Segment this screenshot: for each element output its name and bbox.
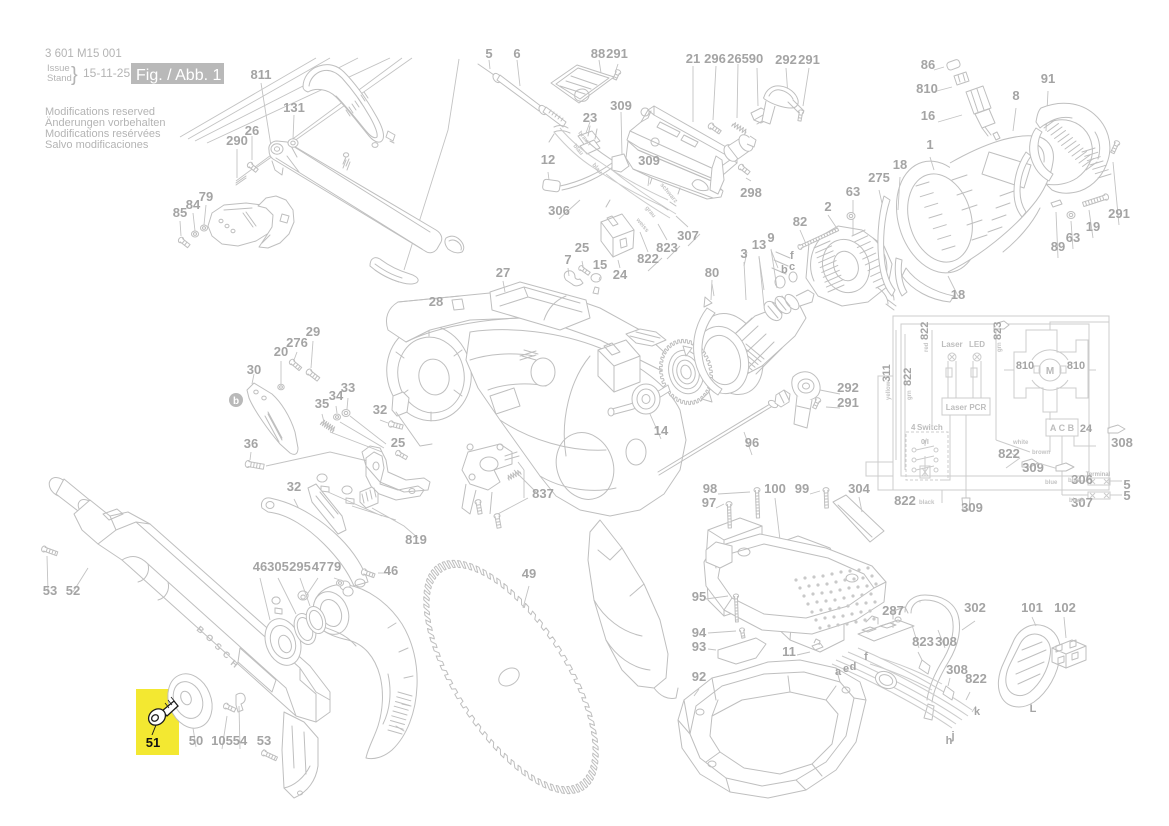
svg-text:307: 307: [677, 228, 699, 243]
svg-text:291: 291: [837, 395, 859, 410]
svg-text:5: 5: [485, 46, 492, 61]
svg-text:49: 49: [522, 566, 536, 581]
svg-text:276: 276: [286, 335, 308, 350]
svg-text:32: 32: [287, 479, 301, 494]
svg-text:50: 50: [189, 733, 203, 748]
svg-text:306: 306: [548, 203, 570, 218]
svg-text:304: 304: [848, 481, 870, 496]
svg-text:LED: LED: [969, 340, 985, 349]
svg-text:309: 309: [638, 153, 660, 168]
svg-text:90: 90: [749, 51, 763, 66]
svg-text:1: 1: [926, 137, 933, 152]
svg-text:33: 33: [341, 380, 355, 395]
svg-text:4: 4: [911, 423, 916, 432]
svg-text:63: 63: [846, 184, 860, 199]
svg-text:88: 88: [591, 46, 605, 61]
svg-text:309: 309: [610, 98, 632, 113]
svg-text:27: 27: [496, 265, 510, 280]
svg-text:L: L: [1030, 703, 1037, 715]
svg-text:53: 53: [43, 583, 57, 598]
svg-text:A C B: A C B: [1050, 423, 1075, 433]
svg-text:54: 54: [233, 733, 248, 748]
svg-text:822: 822: [919, 322, 931, 340]
svg-text:287: 287: [882, 603, 904, 618]
svg-text:15: 15: [593, 257, 607, 272]
svg-text:15-11-25: 15-11-25: [83, 66, 130, 80]
svg-text:e: e: [843, 663, 849, 675]
svg-text:b: b: [233, 396, 239, 407]
svg-text:blue: blue: [1068, 478, 1081, 484]
svg-text:h: h: [946, 735, 953, 747]
svg-text:79: 79: [327, 559, 341, 574]
svg-text:Stand: Stand: [47, 73, 72, 84]
svg-text:24: 24: [1080, 423, 1093, 435]
svg-text:97: 97: [702, 495, 716, 510]
svg-text:5: 5: [1123, 488, 1130, 503]
svg-text:96: 96: [745, 435, 759, 450]
svg-text:46: 46: [253, 559, 267, 574]
svg-text:46: 46: [384, 563, 398, 578]
svg-text:99: 99: [795, 481, 809, 496]
svg-text:3: 3: [740, 246, 747, 261]
svg-text:Laser PCR: Laser PCR: [946, 403, 987, 412]
svg-text:yellow: yellow: [886, 381, 892, 400]
svg-text:302: 302: [964, 600, 986, 615]
svg-text:290: 290: [226, 133, 248, 148]
svg-text:822: 822: [637, 251, 659, 266]
svg-text:16: 16: [921, 108, 935, 123]
svg-text:Salvo modificaciones: Salvo modificaciones: [45, 139, 149, 151]
svg-text:298: 298: [740, 185, 762, 200]
svg-text:86: 86: [921, 57, 935, 72]
svg-text:308: 308: [1111, 435, 1133, 450]
svg-text:}: }: [71, 64, 78, 86]
svg-text:blue: blue: [1045, 480, 1058, 486]
svg-text:837: 837: [532, 486, 554, 501]
svg-text:100: 100: [764, 481, 786, 496]
svg-text:131: 131: [283, 100, 305, 115]
svg-text:28: 28: [429, 294, 443, 309]
svg-text:brown: brown: [1032, 450, 1050, 456]
svg-text:9: 9: [767, 230, 774, 245]
svg-text:811: 811: [251, 67, 272, 82]
svg-text:79: 79: [199, 189, 213, 204]
svg-text:305: 305: [267, 559, 289, 574]
svg-text:823: 823: [912, 634, 934, 649]
svg-text:32: 32: [373, 402, 387, 417]
svg-text:295: 295: [289, 559, 311, 574]
svg-text:89: 89: [1051, 239, 1065, 254]
svg-text:36: 36: [244, 436, 258, 451]
svg-text:a: a: [835, 666, 842, 678]
svg-text:265: 265: [727, 51, 749, 66]
svg-text:309: 309: [1022, 460, 1044, 475]
svg-text:3 601 M15 001: 3 601 M15 001: [45, 48, 122, 60]
svg-text:296: 296: [704, 51, 726, 66]
svg-text:810: 810: [1067, 360, 1085, 372]
svg-text:810: 810: [916, 81, 938, 96]
svg-text:25: 25: [391, 435, 405, 450]
svg-text:35: 35: [315, 396, 329, 411]
svg-text:23: 23: [583, 110, 597, 125]
svg-text:7: 7: [564, 252, 571, 267]
svg-text:819: 819: [405, 532, 427, 547]
svg-text:M: M: [1046, 366, 1054, 377]
svg-text:94: 94: [692, 625, 707, 640]
svg-text:d: d: [850, 661, 857, 673]
svg-text:53: 53: [257, 733, 271, 748]
svg-text:101: 101: [1021, 600, 1043, 615]
svg-text:311: 311: [881, 364, 893, 382]
svg-text:c: c: [789, 261, 795, 273]
svg-text:black: black: [919, 500, 935, 506]
svg-text:51: 51: [146, 735, 160, 750]
svg-text:822: 822: [998, 446, 1020, 461]
svg-text:63: 63: [1066, 230, 1080, 245]
svg-text:291: 291: [1108, 206, 1130, 221]
svg-text:30: 30: [247, 362, 261, 377]
svg-text:2: 2: [824, 199, 831, 214]
svg-text:95: 95: [692, 589, 706, 604]
svg-text:18: 18: [893, 157, 907, 172]
svg-text:822: 822: [965, 671, 987, 686]
svg-text:12: 12: [541, 152, 555, 167]
svg-text:292: 292: [775, 52, 797, 67]
svg-text:k: k: [974, 706, 981, 718]
svg-text:80: 80: [705, 265, 719, 280]
svg-text:11: 11: [782, 644, 796, 659]
svg-text:f: f: [864, 651, 868, 663]
svg-text:98: 98: [703, 481, 717, 496]
svg-text:red: red: [924, 342, 930, 352]
svg-text:291: 291: [798, 52, 820, 67]
svg-text:82: 82: [793, 214, 807, 229]
svg-text:white: white: [1012, 440, 1029, 446]
svg-text:823: 823: [656, 240, 678, 255]
svg-text:grn: grn: [997, 342, 1003, 352]
svg-text:810: 810: [1016, 360, 1034, 372]
svg-text:52: 52: [66, 583, 80, 598]
svg-text:Laser: Laser: [941, 340, 962, 349]
svg-text:14: 14: [654, 423, 669, 438]
svg-text:292: 292: [837, 380, 859, 395]
svg-text:19: 19: [1086, 219, 1100, 234]
svg-text:93: 93: [692, 639, 706, 654]
svg-text:822: 822: [894, 493, 916, 508]
svg-text:grn: grn: [907, 390, 913, 400]
svg-text:6: 6: [513, 46, 520, 61]
svg-text:Switch: Switch: [917, 423, 943, 432]
svg-text:291: 291: [606, 46, 628, 61]
svg-text:13: 13: [752, 237, 766, 252]
svg-text:823: 823: [992, 322, 1004, 340]
svg-text:18: 18: [951, 287, 965, 302]
svg-text:24: 24: [613, 267, 628, 282]
svg-text:275: 275: [868, 170, 890, 185]
svg-text:309: 309: [961, 500, 983, 515]
svg-text:105: 105: [211, 733, 233, 748]
svg-text:29: 29: [306, 324, 320, 339]
svg-text:92: 92: [692, 669, 706, 684]
svg-text:b: b: [781, 264, 788, 276]
svg-text:102: 102: [1054, 600, 1076, 615]
svg-text:21: 21: [686, 51, 700, 66]
svg-text:91: 91: [1041, 71, 1055, 86]
svg-text:47: 47: [312, 559, 326, 574]
svg-text:822: 822: [902, 368, 914, 386]
svg-text:8: 8: [1012, 88, 1019, 103]
svg-text:black: black: [1069, 498, 1085, 504]
svg-text:308: 308: [935, 634, 957, 649]
svg-text:Fig. / Abb. 1: Fig. / Abb. 1: [136, 67, 221, 84]
svg-text:25: 25: [575, 240, 589, 255]
